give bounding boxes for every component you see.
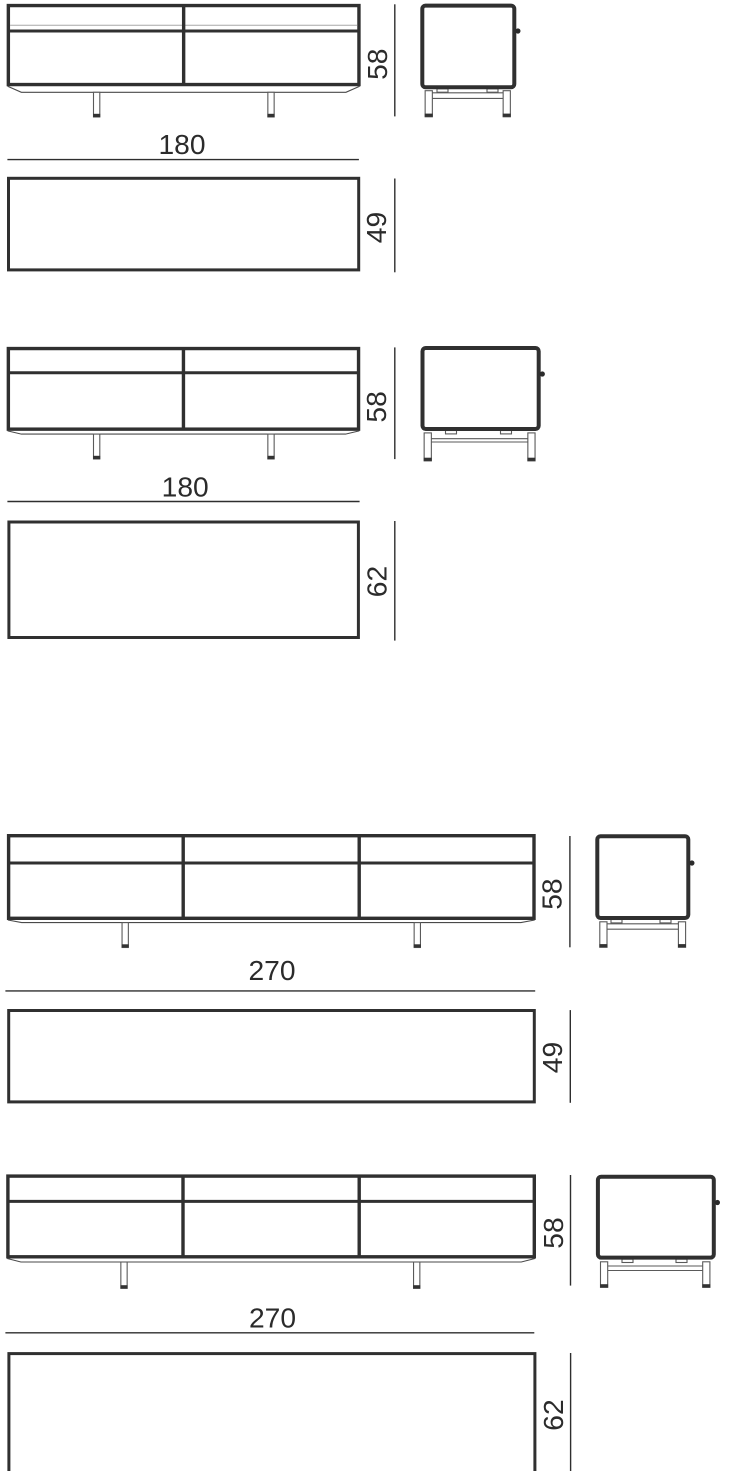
svg-text:58: 58 (360, 391, 392, 422)
svg-text:180: 180 (158, 128, 205, 160)
svg-text:270: 270 (248, 954, 295, 986)
svg-text:62: 62 (537, 1399, 569, 1430)
svg-text:58: 58 (536, 878, 568, 909)
svg-text:62: 62 (361, 566, 393, 597)
svg-text:58: 58 (537, 1217, 569, 1248)
svg-text:58: 58 (361, 49, 393, 80)
svg-text:49: 49 (536, 1042, 568, 1073)
svg-text:180: 180 (162, 470, 209, 502)
svg-text:49: 49 (360, 212, 392, 243)
svg-text:270: 270 (249, 1301, 296, 1333)
